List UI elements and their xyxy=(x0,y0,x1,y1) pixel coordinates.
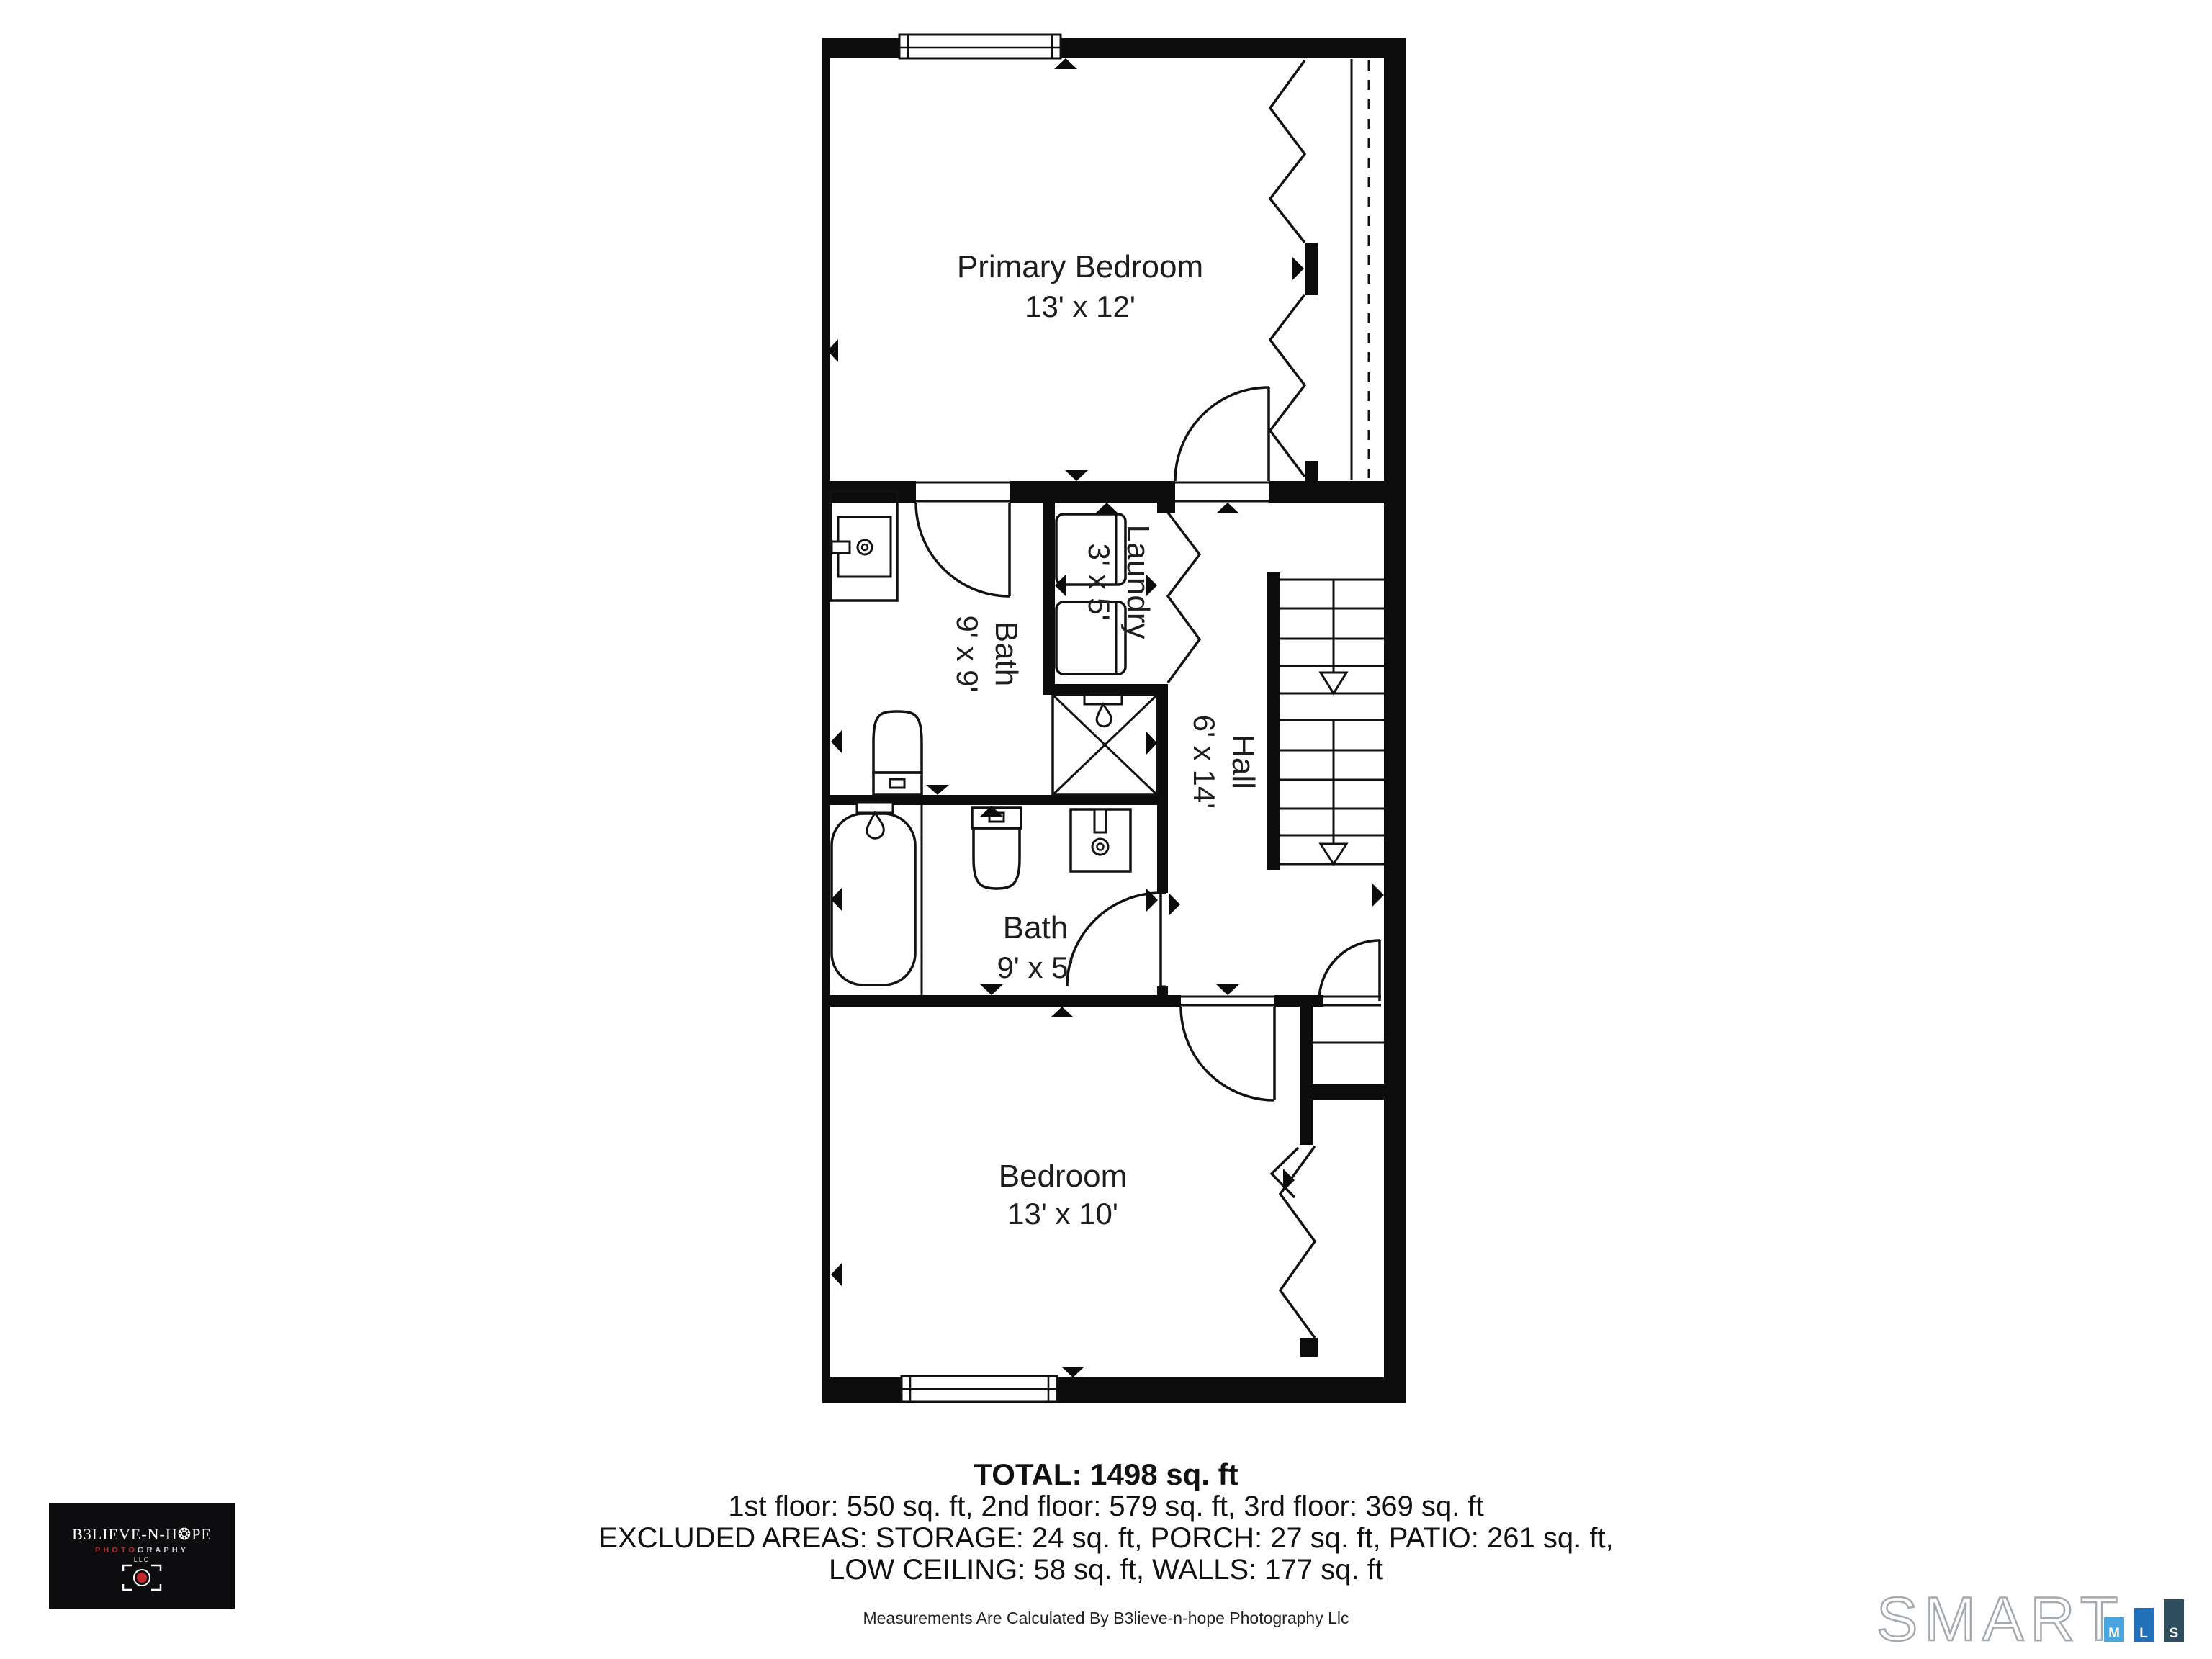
door-storage xyxy=(1319,940,1380,1001)
photographer-logo: B3LIEVE-N-H❂PE PHOTOGRAPHY LLC xyxy=(49,1503,235,1609)
marker-h1-laundry-side xyxy=(1095,503,1118,513)
label-bath-9x9: Bath xyxy=(989,621,1024,687)
wall-left xyxy=(822,38,830,1403)
bath-9x5-fixtures xyxy=(832,802,1130,995)
wall-primary-closet-stub-mid xyxy=(1305,243,1318,295)
bifold-doors-laundry xyxy=(1168,513,1200,683)
camera-icon xyxy=(49,1563,235,1596)
stair-down-arrow-lower xyxy=(1321,844,1346,864)
smart-outline-text: SMART xyxy=(1876,1585,2124,1649)
label-hall-group: Hall 6' x 14' xyxy=(1187,715,1261,809)
smartmls-logo: SMART M L S xyxy=(1871,1583,2209,1649)
mls-letter-s: S xyxy=(2170,1626,2179,1641)
room-labels: Primary Bedroom 13' x 12' Bath 9' x 9' L… xyxy=(950,249,1261,1231)
opening-bath9x9-door xyxy=(916,482,1010,501)
stair-treads-lower xyxy=(1280,720,1384,864)
label-bath-9x9-group: Bath 9' x 9' xyxy=(950,615,1024,692)
bifold-doors-lower xyxy=(1270,295,1305,477)
label-laundry-group: Laundry 3' x 5' xyxy=(1082,524,1156,639)
label-primary-bedroom: Primary Bedroom xyxy=(957,249,1203,284)
marker-h1-primary-side xyxy=(1065,470,1088,481)
stairs xyxy=(1280,580,1384,864)
label-bath-9x9-dims: 9' x 9' xyxy=(950,615,984,692)
mls-letter-m: M xyxy=(2108,1626,2120,1641)
opening-primary-door xyxy=(1175,482,1269,501)
label-bath-9x5-dims: 9' x 5' xyxy=(997,950,1074,984)
floor-areas-text: 1st floor: 550 sq. ft, 2nd floor: 579 sq… xyxy=(0,1491,2212,1522)
sink-vanity-icon xyxy=(1071,809,1130,871)
door-bath-9x9 xyxy=(916,503,1010,596)
llc-text: LLC xyxy=(49,1556,235,1563)
wall-primary-closet-stub-bottom xyxy=(1305,461,1318,481)
label-hall-dims: 6' x 14' xyxy=(1187,715,1221,809)
door-bedroom xyxy=(1181,1007,1274,1100)
wall-right xyxy=(1384,38,1406,1403)
marker-left-bath9x9 xyxy=(831,730,842,753)
wall-h1-right xyxy=(1269,481,1384,503)
marker-hall-right-wall xyxy=(1372,884,1384,907)
wall-laundry-left xyxy=(1043,503,1055,691)
excluded-areas-text-2: LOW CEILING: 58 sq. ft, WALLS: 177 sq. f… xyxy=(0,1554,2212,1586)
total-area-text: TOTAL: 1498 sq. ft xyxy=(0,1459,2212,1491)
window-primary-bedroom xyxy=(899,35,1061,58)
photography-text-red: PHOTO xyxy=(95,1546,138,1555)
opening-storage-door xyxy=(1323,997,1381,1005)
marker-diagonal-door xyxy=(1283,1169,1295,1192)
opening-bedroom-door xyxy=(1181,997,1274,1005)
sink-vanity-icon xyxy=(831,491,897,601)
label-bedroom-dims: 13' x 10' xyxy=(1007,1197,1118,1231)
wall-h3-mid xyxy=(1274,995,1323,1007)
toilet-icon xyxy=(873,711,922,795)
wall-h3-left xyxy=(822,995,1181,1007)
marker-top-window xyxy=(1054,58,1077,69)
bathtub-icon xyxy=(832,802,915,985)
wall-bedroom-closet-vertical xyxy=(1300,1007,1313,1145)
label-bedroom: Bedroom xyxy=(999,1159,1128,1194)
marker-h3-hall-side xyxy=(1216,984,1239,995)
wall-stairs-left xyxy=(1267,572,1280,870)
shower-icon xyxy=(1053,695,1157,795)
marker-shower-right xyxy=(1146,732,1157,755)
photography-text: PHOTOGRAPHY xyxy=(49,1546,235,1555)
window-bedroom xyxy=(902,1376,1057,1401)
mls-letter-l: L xyxy=(2139,1626,2148,1641)
primary-closet xyxy=(1270,59,1369,480)
wall-h1-laundry-stub xyxy=(1157,481,1175,513)
wall-bath-right-lower xyxy=(1157,986,1168,997)
floor-plan-drawing: Primary Bedroom 13' x 12' Bath 9' x 9' L… xyxy=(0,0,2212,1659)
excluded-areas-text-1: EXCLUDED AREAS: STORAGE: 24 sq. ft, PORC… xyxy=(0,1522,2212,1554)
marker-left-bedroom xyxy=(831,1263,842,1286)
label-bath-9x5: Bath xyxy=(1003,910,1069,945)
marker-bottom-window xyxy=(1061,1367,1084,1377)
floor-plan-page: { "floor_plan": { "title_implicit": "3rd… xyxy=(0,0,2212,1659)
label-laundry: Laundry xyxy=(1120,524,1156,639)
photography-text-gray: GRAPHY xyxy=(138,1546,189,1555)
stair-down-arrow-upper xyxy=(1321,673,1346,693)
wall-storage-divider xyxy=(1313,1084,1384,1100)
wall-bath-right-upper xyxy=(1157,684,1168,893)
marker-h3-bath-side xyxy=(980,984,1003,995)
photographer-brand-text: B3LIEVE-N-H❂PE xyxy=(49,1525,235,1544)
label-hall: Hall xyxy=(1226,734,1261,789)
marker-primary-closet-stub xyxy=(1292,257,1304,280)
marker-h1-hall-side xyxy=(1216,503,1239,513)
wall-laundry-bottom xyxy=(1043,684,1168,695)
toilet-icon xyxy=(972,808,1021,889)
wall-h1-mid xyxy=(1010,481,1157,503)
door-primary-bedroom xyxy=(1175,387,1269,481)
wall-bedroom-closet-stub xyxy=(1300,1338,1318,1357)
bifold-doors-upper xyxy=(1270,60,1305,243)
label-primary-bedroom-dims: 13' x 12' xyxy=(1025,289,1136,323)
marker-bath-door-right xyxy=(1169,893,1180,916)
marker-h2-top xyxy=(926,785,949,795)
label-laundry-dims: 3' x 5' xyxy=(1082,543,1116,620)
marker-h3-bedroom-side xyxy=(1051,1007,1074,1017)
